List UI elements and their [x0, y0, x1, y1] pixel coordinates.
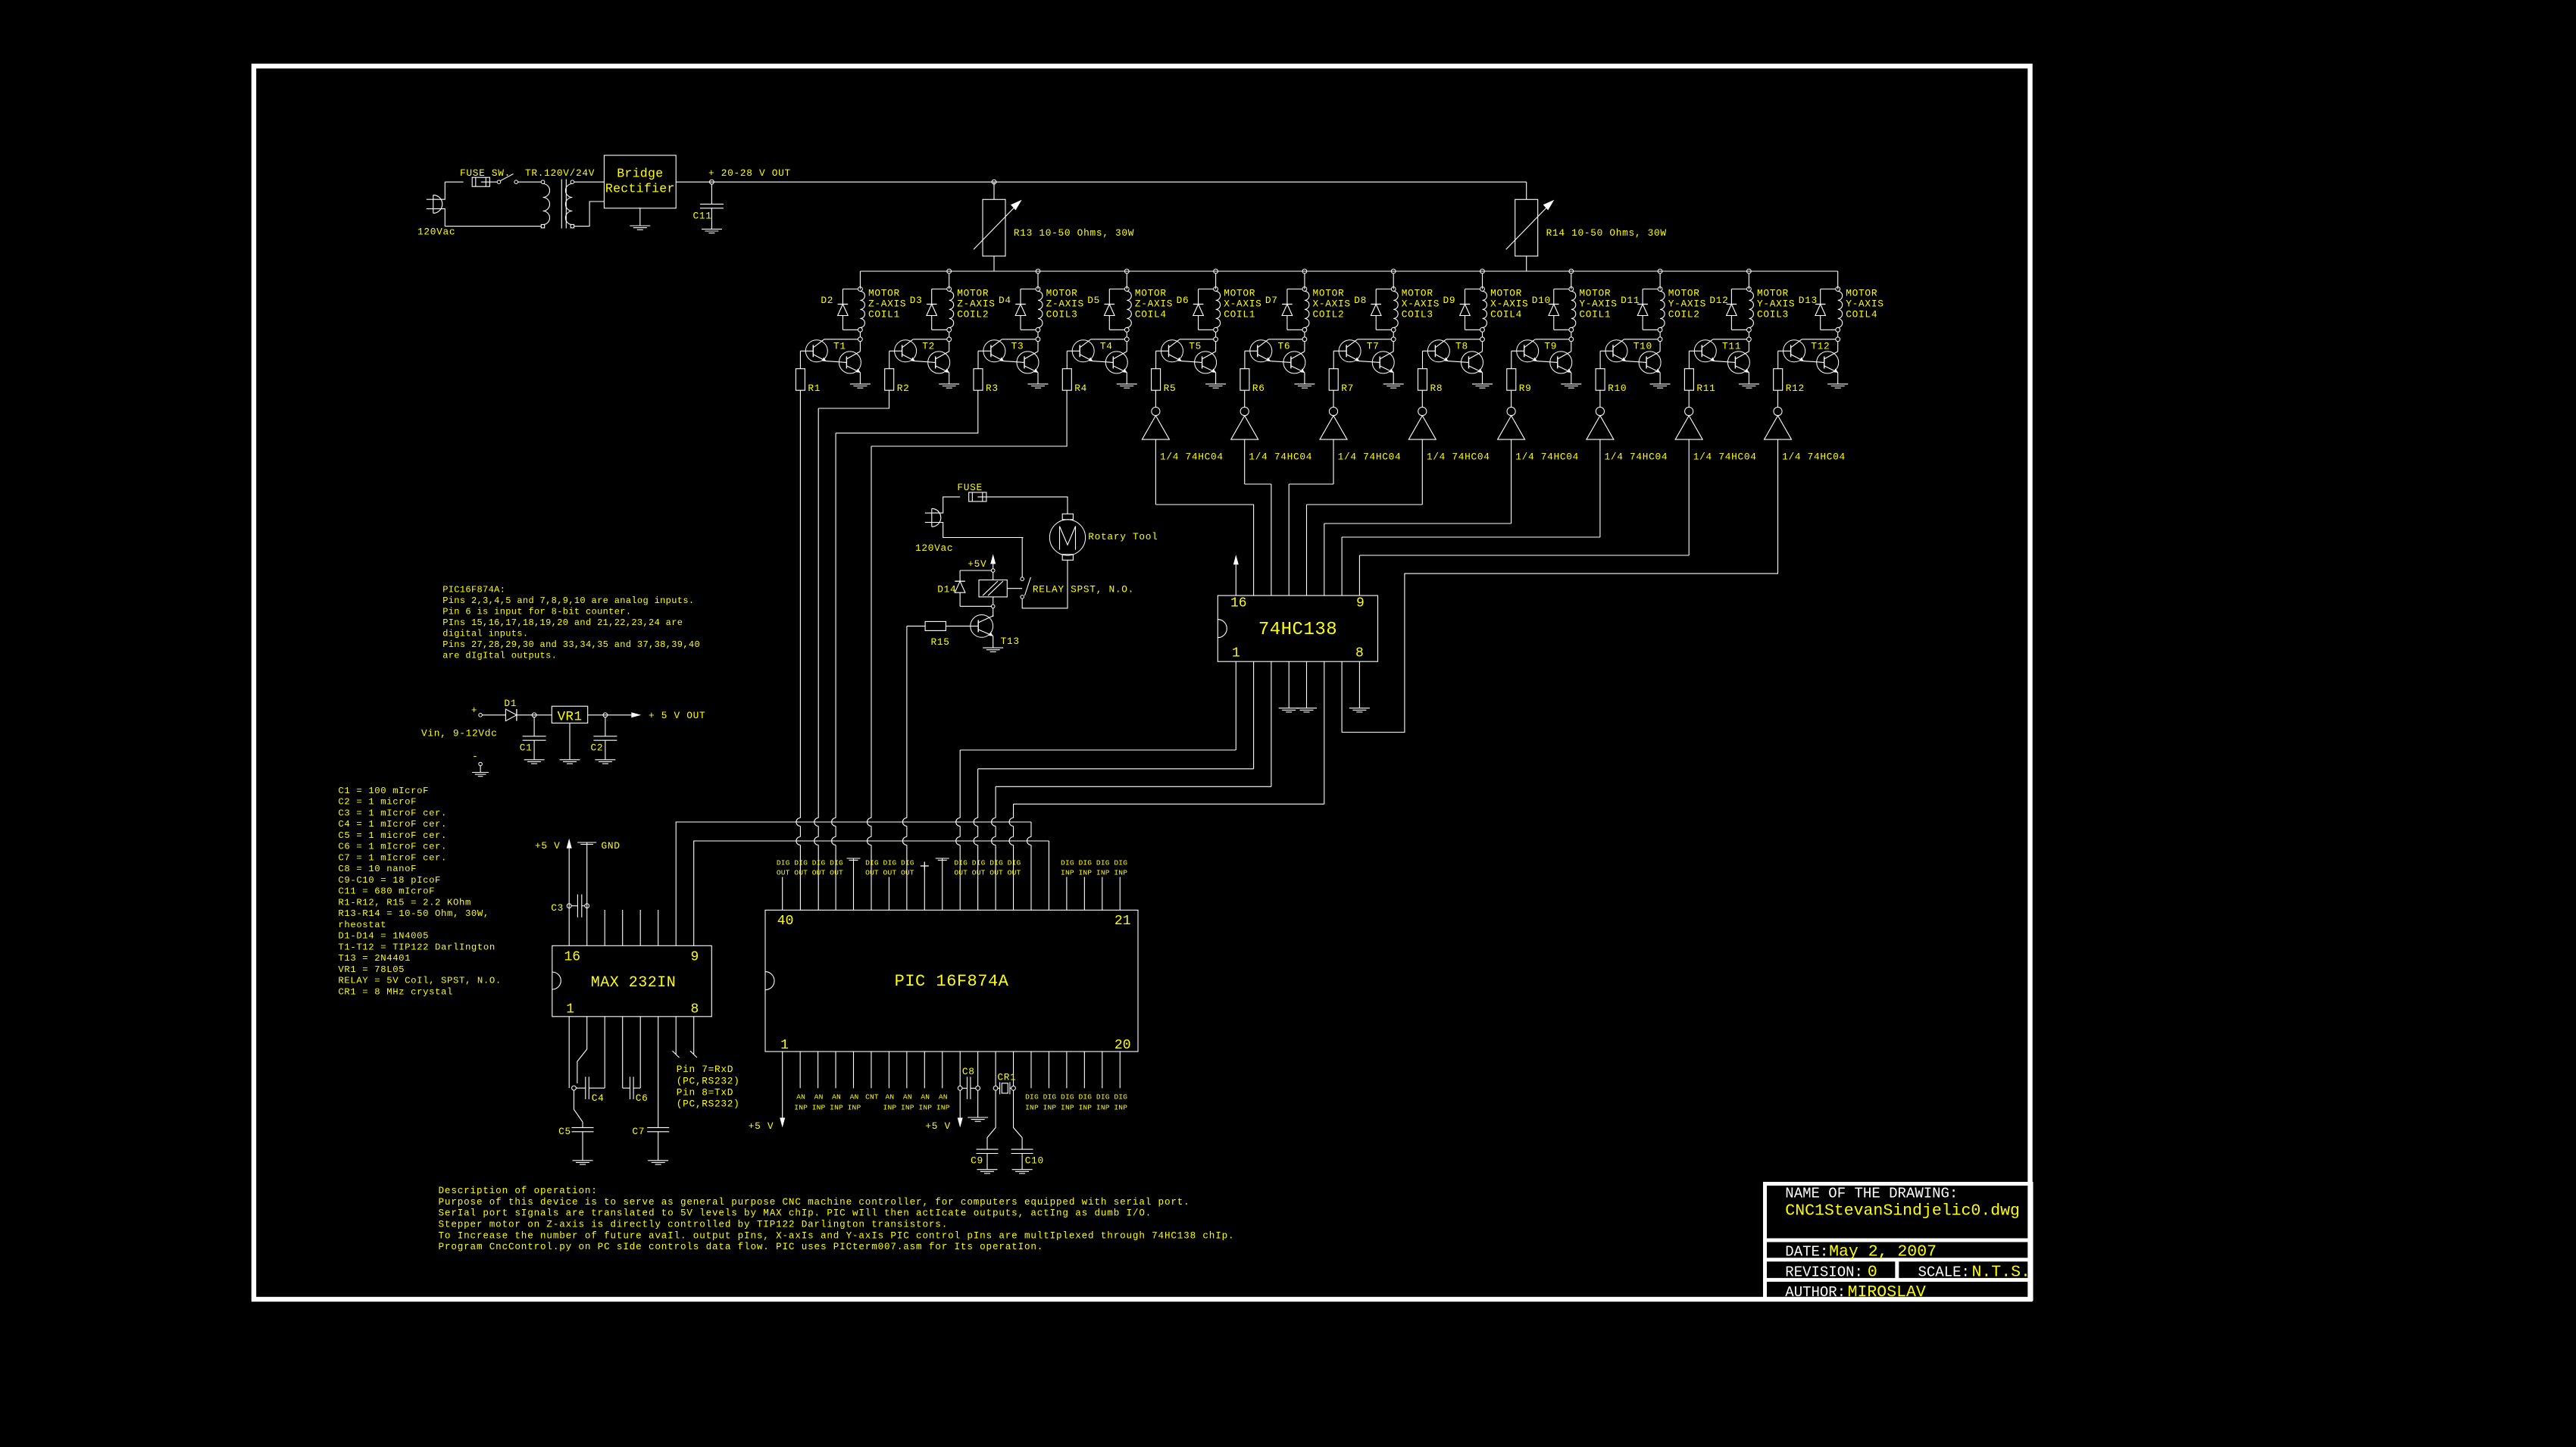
svg-text:R5: R5 [1164, 383, 1177, 394]
svg-text:OUT: OUT [865, 869, 879, 877]
svg-text:D8: D8 [1354, 295, 1367, 306]
svg-text:Z-AXIS: Z-AXIS [1135, 298, 1173, 309]
svg-text:Program CncControl.py on PC sI: Program CncControl.py on PC sIde control… [439, 1242, 1044, 1252]
svg-text:NAME OF THE DRAWING:: NAME OF THE DRAWING: [1785, 1186, 1958, 1202]
svg-text:are dIgItal outputs.: are dIgItal outputs. [442, 651, 557, 661]
svg-text:9: 9 [1356, 596, 1365, 611]
svg-text:D9: D9 [1443, 295, 1456, 306]
svg-text:MOTOR: MOTOR [1579, 287, 1611, 298]
svg-text:MOTOR: MOTOR [1224, 287, 1255, 298]
svg-text:MOTOR: MOTOR [1046, 287, 1078, 298]
svg-text:C7 = 1 mIcroF cer.: C7 = 1 mIcroF cer. [338, 852, 447, 863]
svg-text:MIROSLAV: MIROSLAV [1848, 1283, 1926, 1302]
svg-text:MOTOR: MOTOR [1846, 287, 1877, 298]
svg-text:9: 9 [691, 950, 699, 965]
svg-text:T13: T13 [1001, 636, 1020, 647]
svg-text:T3: T3 [1011, 341, 1024, 352]
svg-text:Vin, 9-12Vdc: Vin, 9-12Vdc [421, 728, 498, 739]
svg-text:T5: T5 [1189, 341, 1202, 352]
svg-text:Y-AXIS: Y-AXIS [1668, 298, 1706, 309]
svg-text:Z-AXIS: Z-AXIS [1046, 298, 1084, 309]
svg-text:OUT: OUT [812, 869, 826, 877]
svg-text:DATE:: DATE: [1785, 1244, 1828, 1261]
svg-text:D2: D2 [821, 295, 833, 306]
svg-text:INP: INP [848, 1104, 861, 1112]
svg-text:INP: INP [936, 1104, 950, 1112]
svg-text:INP: INP [1061, 869, 1074, 877]
svg-text:COIL2: COIL2 [1668, 308, 1700, 320]
svg-text:DIG: DIG [1078, 859, 1092, 867]
svg-text:DIG: DIG [1096, 859, 1110, 867]
svg-text:VR1: VR1 [558, 710, 583, 725]
svg-text:INP: INP [1114, 869, 1127, 877]
svg-text:D4: D4 [999, 295, 1011, 306]
svg-text:OUT: OUT [777, 869, 790, 877]
svg-text:R2: R2 [897, 383, 910, 394]
svg-text:C6 = 1 mIcroF cer.: C6 = 1 mIcroF cer. [338, 842, 447, 852]
svg-text:C2: C2 [591, 742, 604, 754]
svg-text:+5 V: +5 V [925, 1120, 951, 1132]
svg-text:120Vac: 120Vac [915, 542, 953, 554]
svg-text:C11 = 680 mIcroF: C11 = 680 mIcroF [338, 886, 435, 897]
svg-text:AN: AN [903, 1093, 912, 1102]
svg-text:INP: INP [794, 1104, 808, 1112]
svg-text:INP: INP [1096, 869, 1110, 877]
svg-text:N.T.S.: N.T.S. [1972, 1263, 2030, 1281]
svg-text:Y-AXIS: Y-AXIS [1757, 298, 1795, 309]
svg-text:R4: R4 [1074, 383, 1087, 394]
svg-text:R12: R12 [1786, 383, 1805, 394]
svg-text:DIG: DIG [812, 859, 826, 867]
svg-text:T10: T10 [1633, 341, 1652, 352]
svg-text:T7: T7 [1367, 341, 1380, 352]
svg-text:74HC138: 74HC138 [1258, 620, 1337, 640]
svg-text:Pin 6 is input for 8-bit count: Pin 6 is input for 8-bit counter. [442, 606, 631, 617]
svg-text:D1: D1 [504, 698, 517, 709]
svg-text:COIL4: COIL4 [1135, 308, 1167, 320]
svg-text:DIG: DIG [1061, 1093, 1074, 1102]
svg-text:Pins 27,28,29,30 and 33,34,35: Pins 27,28,29,30 and 33,34,35 and 37,38,… [442, 639, 700, 650]
svg-text:D7: D7 [1265, 295, 1278, 306]
svg-text:Z-AXIS: Z-AXIS [957, 298, 995, 309]
svg-text:INP: INP [1025, 1104, 1039, 1112]
svg-text:DIG: DIG [1008, 859, 1021, 867]
svg-text:R6: R6 [1252, 383, 1265, 394]
svg-text:T4: T4 [1100, 341, 1113, 352]
svg-text:R7: R7 [1341, 383, 1354, 394]
svg-text:(PC,RS232): (PC,RS232) [677, 1099, 740, 1110]
svg-text:AN: AN [796, 1093, 805, 1102]
svg-text:OUT: OUT [1008, 869, 1021, 877]
svg-text:DIG: DIG [1114, 1093, 1127, 1102]
svg-text:D13: D13 [1799, 295, 1818, 306]
svg-text:R14 10-50 Ohms, 30W: R14 10-50 Ohms, 30W [1546, 227, 1667, 239]
svg-text:T8: T8 [1455, 341, 1468, 352]
svg-text:C3 = 1 mIcroF cer.: C3 = 1 mIcroF cer. [338, 808, 447, 818]
svg-text:MOTOR: MOTOR [1490, 287, 1522, 298]
svg-text:Y-AXIS: Y-AXIS [1846, 298, 1884, 309]
svg-text:COIL1: COIL1 [868, 308, 900, 320]
svg-text:INP: INP [1043, 1104, 1057, 1112]
svg-text:C3: C3 [551, 902, 564, 914]
svg-text:CR1 = 8 MHz crystal: CR1 = 8 MHz crystal [338, 986, 453, 997]
svg-text:MOTOR: MOTOR [1135, 287, 1167, 298]
svg-text:COIL1: COIL1 [1224, 308, 1255, 320]
svg-text:DIG: DIG [1096, 1093, 1110, 1102]
svg-text:R15: R15 [931, 636, 950, 648]
svg-text:MOTOR: MOTOR [1757, 287, 1789, 298]
svg-text:COIL1: COIL1 [1579, 308, 1611, 320]
svg-text:D14: D14 [937, 584, 956, 595]
svg-text:SerIal port sIgnals are transl: SerIal port sIgnals are translated to 5V… [439, 1208, 1152, 1219]
svg-text:INP: INP [812, 1104, 826, 1112]
svg-text:C9: C9 [971, 1155, 983, 1167]
svg-text:C8 = 10 nanoF: C8 = 10 nanoF [338, 864, 417, 874]
svg-text:CR1: CR1 [997, 1072, 1016, 1083]
svg-text:COIL4: COIL4 [1490, 308, 1522, 320]
svg-text:AUTHOR:: AUTHOR: [1785, 1284, 1846, 1301]
svg-text:DIG: DIG [865, 859, 879, 867]
svg-text:OUT: OUT [794, 869, 808, 877]
svg-text:+: + [471, 705, 477, 716]
svg-text:D12: D12 [1709, 295, 1728, 306]
svg-text:AN: AN [885, 1093, 894, 1102]
svg-text:MOTOR: MOTOR [957, 287, 989, 298]
svg-text:AN: AN [832, 1093, 841, 1102]
svg-text:Pin 8=TxD: Pin 8=TxD [677, 1086, 733, 1098]
svg-text:DIG: DIG [883, 859, 897, 867]
svg-text:MAX 232IN: MAX 232IN [591, 974, 677, 992]
svg-text:1/4 74HC04: 1/4 74HC04 [1427, 452, 1490, 463]
svg-text:INP: INP [883, 1104, 897, 1112]
svg-text:C4 = 1 mIcroF cer.: C4 = 1 mIcroF cer. [338, 819, 447, 830]
svg-text:-: - [472, 751, 478, 762]
svg-text:VR1 = 78L05: VR1 = 78L05 [338, 964, 405, 975]
svg-text:DIG: DIG [901, 859, 914, 867]
svg-text:COIL3: COIL3 [1757, 308, 1789, 320]
svg-text:D10: D10 [1532, 295, 1551, 306]
svg-text:OUT: OUT [989, 869, 1003, 877]
svg-text:Z-AXIS: Z-AXIS [868, 298, 906, 309]
svg-text:Description of operation:: Description of operation: [439, 1186, 598, 1196]
svg-text:INP: INP [830, 1104, 843, 1112]
svg-text:COIL2: COIL2 [1313, 308, 1345, 320]
svg-text:R13 10-50 Ohms, 30W: R13 10-50 Ohms, 30W [1014, 227, 1134, 239]
svg-text:T13 = 2N4401: T13 = 2N4401 [338, 953, 411, 964]
svg-text:MOTOR: MOTOR [1402, 287, 1433, 298]
svg-text:Rectifier: Rectifier [605, 182, 675, 196]
svg-text:T11: T11 [1722, 341, 1741, 352]
svg-text:DIG: DIG [1078, 1093, 1092, 1102]
svg-text:+5V: +5V [968, 558, 986, 570]
svg-text:OUT: OUT [972, 869, 986, 877]
svg-text:RELAY SPST, N.O.: RELAY SPST, N.O. [1033, 584, 1134, 595]
svg-text:R9: R9 [1519, 383, 1532, 394]
svg-text:FUSE: FUSE [957, 482, 983, 493]
svg-text:T1-T12 = TIP122 DarlIngton: T1-T12 = TIP122 DarlIngton [338, 942, 495, 952]
svg-text:D3: D3 [910, 295, 923, 306]
svg-text:DIG: DIG [954, 859, 968, 867]
svg-text:C1 = 100 mIcroF: C1 = 100 mIcroF [338, 786, 429, 796]
svg-text:Stepper motor on Z-axis is dir: Stepper motor on Z-axis is directly cont… [439, 1219, 949, 1230]
svg-text:PIC 16F874A: PIC 16F874A [895, 972, 1009, 991]
svg-text:TR.120V/24V: TR.120V/24V [525, 167, 595, 179]
svg-text:R8: R8 [1430, 383, 1443, 394]
svg-text:R1: R1 [808, 383, 821, 394]
svg-text:RELAY = 5V CoIl, SPST, N.O.: RELAY = 5V CoIl, SPST, N.O. [338, 976, 501, 986]
svg-text:120Vac: 120Vac [417, 227, 455, 238]
svg-text:COIL3: COIL3 [1046, 308, 1078, 320]
svg-text:OUT: OUT [883, 869, 897, 877]
svg-text:T1: T1 [833, 341, 846, 352]
svg-text:OUT: OUT [830, 869, 843, 877]
svg-text:8: 8 [691, 1002, 699, 1017]
svg-text:REVISION:: REVISION: [1785, 1264, 1863, 1280]
svg-text:Pins 2,3,4,5 and 7,8,9,10 are: Pins 2,3,4,5 and 7,8,9,10 are analog inp… [442, 595, 694, 606]
svg-text:OUT: OUT [901, 869, 914, 877]
svg-text:(PC,RS232): (PC,RS232) [677, 1075, 740, 1086]
svg-text:X-AXIS: X-AXIS [1224, 298, 1261, 309]
svg-text:D11: D11 [1621, 295, 1640, 306]
svg-text:DIG: DIG [989, 859, 1003, 867]
svg-text:INP: INP [901, 1104, 914, 1112]
svg-text:R10: R10 [1608, 383, 1627, 394]
svg-text:T6: T6 [1278, 341, 1291, 352]
svg-text:R13-R14 = 10-50 Ohm, 30W,: R13-R14 = 10-50 Ohm, 30W, [338, 908, 489, 919]
svg-text:DIG: DIG [1025, 1093, 1039, 1102]
svg-text:C8: C8 [962, 1066, 975, 1077]
svg-text:D1-D14 = 1N4005: D1-D14 = 1N4005 [338, 931, 429, 942]
svg-text:INP: INP [1078, 869, 1092, 877]
svg-text:C5 = 1 microF cer.: C5 = 1 microF cer. [338, 830, 447, 841]
svg-text:T2: T2 [922, 341, 935, 352]
svg-text:+ 5 V OUT: + 5 V OUT [649, 710, 705, 721]
svg-text:CNT: CNT [865, 1093, 879, 1102]
svg-text:DIG: DIG [1114, 859, 1127, 867]
svg-text:INP: INP [1114, 1104, 1127, 1112]
svg-text:INP: INP [1096, 1104, 1110, 1112]
svg-text:+ 20-28 V OUT: + 20-28 V OUT [708, 167, 791, 179]
svg-text:DIG: DIG [830, 859, 843, 867]
svg-text:rheostat: rheostat [338, 920, 386, 930]
svg-text:16: 16 [564, 950, 581, 965]
svg-text:CNC1StevanSindjelic0.dwg: CNC1StevanSindjelic0.dwg [1785, 1202, 2020, 1220]
svg-text:R1-R12, R15 = 2.2 KOhm: R1-R12, R15 = 2.2 KOhm [338, 897, 471, 908]
svg-text:C1: C1 [520, 742, 533, 754]
svg-text:C6: C6 [636, 1092, 649, 1104]
svg-text:16: 16 [1230, 596, 1247, 611]
svg-text:21: 21 [1114, 914, 1131, 929]
svg-text:C2 = 1 microF: C2 = 1 microF [338, 797, 417, 808]
svg-text:Pin 7=RxD: Pin 7=RxD [677, 1064, 733, 1075]
svg-text:R11: R11 [1696, 383, 1715, 394]
svg-text:1/4 74HC04: 1/4 74HC04 [1338, 452, 1402, 463]
svg-text:1: 1 [1232, 646, 1240, 661]
svg-text:PIns 15,16,17,18,19,20 and 21,: PIns 15,16,17,18,19,20 and 21,22,23,24 a… [442, 617, 683, 628]
svg-text:Y-AXIS: Y-AXIS [1579, 298, 1617, 309]
svg-text:Rotary Tool: Rotary Tool [1088, 531, 1158, 542]
svg-text:DIG: DIG [777, 859, 790, 867]
svg-text:COIL4: COIL4 [1846, 308, 1877, 320]
svg-text:To Increase the number of futu: To Increase the number of future avaIl. … [439, 1230, 1235, 1241]
svg-text:1/4 74HC04: 1/4 74HC04 [1160, 452, 1224, 463]
svg-text:DIG: DIG [1043, 1093, 1057, 1102]
svg-text:1/4 74HC04: 1/4 74HC04 [1782, 452, 1846, 463]
svg-text:MOTOR: MOTOR [1313, 287, 1345, 298]
svg-text:20: 20 [1114, 1038, 1131, 1053]
svg-text:T12: T12 [1811, 341, 1830, 352]
svg-text:R3: R3 [986, 383, 999, 394]
svg-text:DIG: DIG [1061, 859, 1074, 867]
svg-text:AN: AN [814, 1093, 824, 1102]
svg-text:AN: AN [921, 1093, 930, 1102]
svg-text:OUT: OUT [954, 869, 968, 877]
svg-text:COIL3: COIL3 [1402, 308, 1433, 320]
svg-text:1/4 74HC04: 1/4 74HC04 [1249, 452, 1312, 463]
svg-text:MOTOR: MOTOR [868, 287, 900, 298]
svg-text:Purpose of this device is to s: Purpose of this device is to serve as ge… [439, 1197, 1190, 1208]
svg-text:May 2, 2007: May 2, 2007 [1829, 1243, 1937, 1261]
svg-text:C9-C10 = 18 pIcoF: C9-C10 = 18 pIcoF [338, 875, 441, 886]
svg-text:SCALE:: SCALE: [1918, 1264, 1970, 1280]
svg-text:8: 8 [1355, 646, 1364, 661]
svg-text:+5 V: +5 V [749, 1120, 774, 1132]
svg-text:DIG: DIG [794, 859, 808, 867]
svg-text:+5 V: +5 V [535, 840, 561, 852]
svg-text:D5: D5 [1087, 295, 1100, 306]
svg-text:MOTOR: MOTOR [1668, 287, 1700, 298]
svg-text:AN: AN [939, 1093, 948, 1102]
svg-text:D6: D6 [1177, 295, 1190, 306]
svg-text:1: 1 [566, 1002, 574, 1017]
svg-text:INP: INP [1078, 1104, 1092, 1112]
svg-text:X-AXIS: X-AXIS [1313, 298, 1351, 309]
svg-text:T9: T9 [1544, 341, 1557, 352]
svg-text:DIG: DIG [972, 859, 986, 867]
svg-text:GND: GND [602, 840, 621, 852]
svg-text:COIL2: COIL2 [957, 308, 989, 320]
svg-text:40: 40 [777, 914, 794, 929]
svg-text:INP: INP [1061, 1104, 1074, 1112]
svg-text:1/4 74HC04: 1/4 74HC04 [1515, 452, 1579, 463]
svg-text:C5: C5 [558, 1126, 571, 1137]
svg-text:FUSE SW.: FUSE SW. [460, 167, 511, 179]
svg-text:Bridge: Bridge [617, 167, 663, 181]
svg-text:X-AXIS: X-AXIS [1490, 298, 1528, 309]
svg-text:C11: C11 [693, 211, 712, 222]
svg-text:C10: C10 [1025, 1155, 1044, 1167]
svg-text:C4: C4 [592, 1092, 605, 1104]
svg-text:0: 0 [1868, 1263, 1877, 1281]
svg-text:INP: INP [918, 1104, 932, 1112]
svg-text:1: 1 [780, 1038, 789, 1053]
svg-text:1/4 74HC04: 1/4 74HC04 [1693, 452, 1757, 463]
svg-text:digital inputs.: digital inputs. [442, 629, 528, 639]
svg-text:X-AXIS: X-AXIS [1402, 298, 1440, 309]
svg-text:C7: C7 [632, 1126, 645, 1137]
svg-text:PIC16F874A:: PIC16F874A: [442, 584, 505, 595]
svg-text:1/4 74HC04: 1/4 74HC04 [1605, 452, 1668, 463]
svg-text:AN: AN [850, 1093, 859, 1102]
